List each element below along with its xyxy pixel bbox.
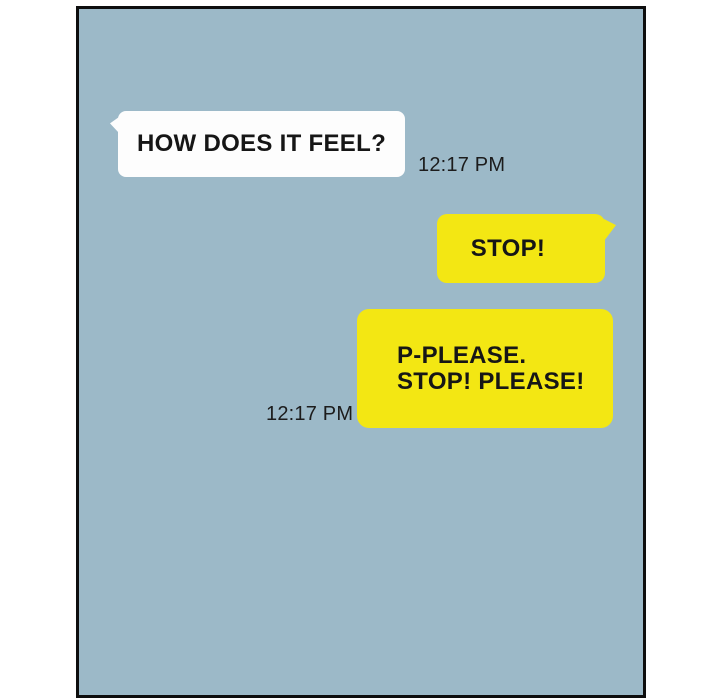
message-text: STOP! <box>471 236 545 262</box>
bubble-tail-right <box>604 219 616 241</box>
comic-page: HOW DOES IT FEEL? 12:17 PM STOP! P-PLEAS… <box>0 0 720 700</box>
message-text: HOW DOES IT FEEL? <box>137 131 386 157</box>
timestamp: 12:17 PM <box>266 403 353 425</box>
message-bubble-incoming: HOW DOES IT FEEL? <box>118 111 405 177</box>
timestamp: 12:17 PM <box>418 154 505 176</box>
bubble-tail-left <box>110 117 119 133</box>
message-bubble-outgoing: P-PLEASE. STOP! PLEASE! <box>357 309 613 428</box>
message-text-line: STOP! PLEASE! <box>397 369 585 395</box>
message-text-line: P-PLEASE. <box>397 343 526 369</box>
message-bubble-outgoing: STOP! <box>437 214 605 283</box>
chat-panel: HOW DOES IT FEEL? 12:17 PM STOP! P-PLEAS… <box>76 6 646 698</box>
